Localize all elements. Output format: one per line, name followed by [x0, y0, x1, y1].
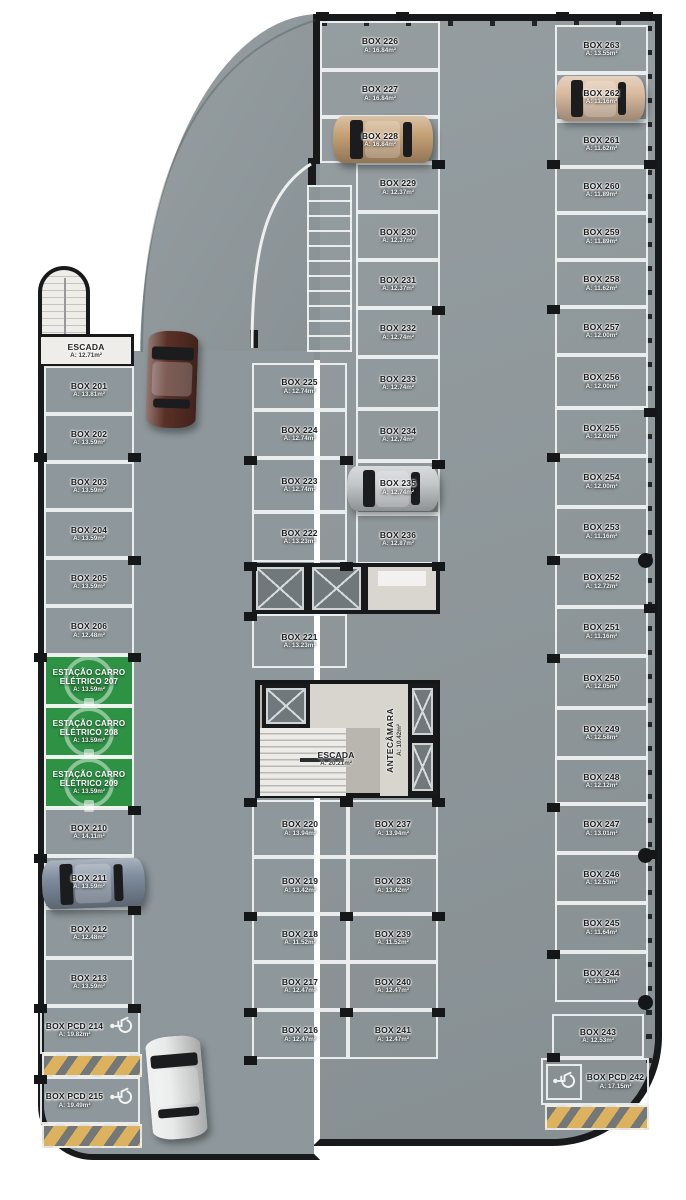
service-room — [364, 563, 440, 614]
windshield — [571, 80, 583, 118]
stair-room-left — [38, 334, 134, 367]
column-pillar — [128, 556, 141, 565]
parking-box — [555, 952, 648, 1002]
windshield — [152, 347, 194, 361]
parking-box — [252, 512, 347, 562]
parking-box — [555, 408, 648, 456]
rear-window — [411, 472, 419, 505]
column-pillar — [432, 306, 445, 315]
elevator-shaft — [252, 563, 308, 614]
ev-charger-icon — [64, 707, 114, 757]
column-pillar — [340, 798, 353, 807]
column-pillar — [340, 562, 353, 571]
column-pillar — [316, 12, 329, 21]
curb-wall-stub — [250, 330, 258, 348]
car-roof — [365, 121, 400, 159]
elevator-shaft — [308, 563, 365, 614]
column-pillar — [34, 653, 47, 662]
elevator-shaft — [408, 684, 437, 739]
column-pillar — [128, 806, 141, 815]
parking-box — [44, 958, 134, 1006]
rear-window — [618, 82, 626, 115]
parking-box — [356, 357, 440, 409]
column-pillar — [128, 653, 141, 662]
parking-box — [252, 800, 348, 857]
ramp-stripes — [307, 185, 352, 352]
column-pillar — [244, 1008, 257, 1017]
parking-box — [555, 307, 648, 355]
elevator-shaft — [262, 684, 310, 728]
column-pillar — [640, 12, 653, 21]
windshield — [363, 470, 375, 508]
column-pillar — [432, 912, 445, 921]
parking-box — [252, 1010, 348, 1059]
car-silver-box235 — [347, 466, 439, 511]
parking-box — [555, 556, 648, 607]
windshield — [350, 120, 363, 159]
windshield — [59, 864, 74, 906]
curb-wall-stub — [308, 158, 316, 185]
parking-box — [555, 656, 648, 708]
parking-box — [555, 507, 648, 556]
column-pillar — [556, 12, 569, 21]
stairs-handrail — [300, 758, 344, 762]
column-pillar — [432, 562, 445, 571]
parking-box — [555, 260, 648, 307]
ev-station-box — [44, 757, 134, 808]
column-pillar — [547, 453, 560, 462]
car-brown-aisle-top — [145, 330, 198, 429]
column-pillar — [244, 562, 257, 571]
column-pillar — [547, 556, 560, 565]
parking-box — [348, 800, 438, 857]
pcd-hatch-strip — [545, 1105, 649, 1130]
wall-left-of-box226 — [313, 14, 320, 164]
antechamber-label: ANTECÂMARA A: 10.42m² — [380, 688, 408, 792]
parking-box — [44, 462, 134, 510]
core-room — [310, 684, 382, 728]
car-tan-box228 — [333, 116, 433, 163]
parking-box — [44, 414, 134, 462]
column-pillar — [644, 408, 657, 417]
parking-box — [44, 908, 134, 958]
column-pillar — [128, 453, 141, 462]
parking-box — [356, 308, 440, 357]
column-pillar — [432, 160, 445, 169]
parking-box — [555, 355, 648, 408]
elevator-shaft — [408, 739, 437, 795]
column-pillar — [244, 912, 257, 921]
rear-window — [153, 398, 190, 408]
parking-box — [320, 21, 440, 70]
column-pillar — [34, 1004, 47, 1013]
car-blue-box211 — [41, 857, 146, 910]
parking-box — [555, 167, 648, 213]
parking-box — [252, 458, 347, 512]
parking-box — [356, 514, 440, 564]
column-pillar — [396, 12, 409, 21]
pcd-parking-box — [541, 1058, 649, 1105]
ev-station-box — [44, 655, 134, 706]
column-pillar — [128, 906, 141, 915]
column-pillar — [340, 912, 353, 921]
parking-box — [356, 163, 440, 212]
column-pillar — [547, 305, 560, 314]
pcd-parking-box — [40, 1077, 140, 1124]
column-pillar — [244, 456, 257, 465]
column-pillar — [432, 1008, 445, 1017]
pcd-hatch-strip — [42, 1124, 142, 1148]
wall-top — [313, 14, 662, 21]
pcd-hatch-strip — [42, 1054, 142, 1077]
car-roof — [153, 1067, 200, 1107]
car-roof — [584, 81, 615, 117]
floor-slab-curved-road — [140, 14, 320, 360]
parking-box — [555, 708, 648, 758]
column-pillar — [432, 460, 445, 469]
parking-box — [348, 857, 438, 914]
parking-box — [356, 260, 440, 308]
parking-box — [348, 962, 438, 1010]
stairs-core-treads — [260, 728, 346, 796]
column-pillar — [340, 456, 353, 465]
parking-box — [555, 213, 648, 260]
column-pillar — [244, 1056, 257, 1065]
parking-box — [252, 962, 348, 1010]
column-pillar — [432, 798, 445, 807]
column-pillar — [644, 160, 657, 169]
parking-box — [320, 70, 440, 117]
parking-box — [555, 758, 648, 804]
column-pillar — [547, 1053, 560, 1062]
ev-charger-icon — [64, 656, 114, 706]
column-pillar — [34, 1075, 47, 1084]
column-pillar — [547, 654, 560, 663]
column-pillar — [128, 1004, 141, 1013]
rear-window — [403, 122, 412, 157]
car-roof — [376, 471, 408, 507]
parking-box — [44, 606, 134, 655]
parking-box — [356, 212, 440, 260]
round-column — [638, 553, 653, 568]
parking-box — [252, 363, 347, 410]
car-roof — [151, 361, 192, 396]
parking-box — [356, 409, 440, 461]
parking-box — [44, 558, 134, 606]
round-column — [638, 848, 653, 863]
column-pillar — [644, 604, 657, 613]
car-tan-box262 — [556, 76, 645, 121]
pcd-parking-box — [40, 1006, 140, 1054]
parking-box — [252, 614, 347, 668]
parking-box — [252, 857, 348, 914]
column-pillar — [244, 612, 257, 621]
column-pillar — [547, 803, 560, 812]
ev-station-box — [44, 706, 134, 757]
parking-box — [555, 121, 648, 167]
parking-box — [252, 410, 347, 458]
parking-box — [555, 607, 648, 656]
parking-box — [348, 914, 438, 962]
column-pillar — [547, 950, 560, 959]
windshield — [151, 1052, 198, 1069]
round-column — [638, 995, 653, 1010]
column-pillar — [34, 854, 47, 863]
parking-box — [44, 366, 134, 414]
column-pillar — [547, 160, 560, 169]
ev-charger-icon — [64, 758, 114, 808]
parking-box — [555, 853, 648, 903]
parking-box — [555, 456, 648, 507]
parking-box — [555, 903, 648, 952]
parking-box — [555, 25, 648, 73]
rear-window — [113, 864, 124, 901]
column-pillar — [244, 798, 257, 807]
parking-box — [44, 808, 134, 856]
parking-box — [44, 510, 134, 558]
column-pillar — [34, 453, 47, 462]
parking-box — [552, 1014, 644, 1058]
car-roof — [74, 863, 111, 903]
parking-box — [555, 804, 648, 853]
parking-box — [252, 914, 348, 962]
parking-floor-plan: ESCADA A: 12.71m² ESCADA A: 20.21m² ANTE… — [0, 0, 686, 1200]
car-white-aisle-bottom — [145, 1034, 209, 1141]
column-pillar — [340, 1008, 353, 1017]
rear-window — [158, 1106, 199, 1119]
parking-box — [348, 1010, 438, 1059]
